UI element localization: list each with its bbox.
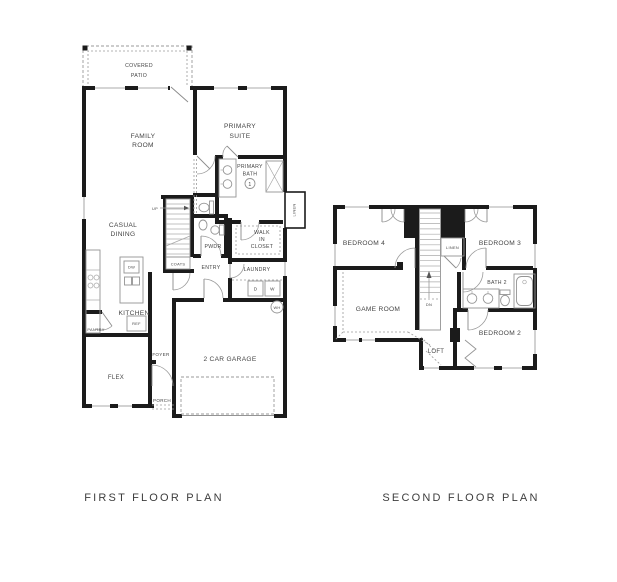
label-walk-in-closet: CLOSET bbox=[251, 244, 274, 250]
first-floor-walls bbox=[82, 86, 287, 418]
label-entry: ENTRY bbox=[202, 265, 221, 271]
second-floor-stairs bbox=[420, 209, 441, 330]
label-family-room: ROOM bbox=[132, 142, 154, 149]
label-primary-bath: BATH bbox=[243, 172, 258, 178]
label-dryer: D bbox=[254, 287, 258, 292]
label-up: UP bbox=[152, 206, 158, 211]
laundry-door bbox=[230, 264, 244, 278]
label-down: DN bbox=[426, 302, 432, 307]
garage-entry-door bbox=[204, 279, 223, 298]
label-casual-dining: CASUAL bbox=[109, 222, 137, 229]
game-room-dashed-lines bbox=[335, 272, 441, 365]
toilet-icon bbox=[500, 290, 510, 306]
label-coats: COATS bbox=[171, 262, 186, 267]
sink-icon bbox=[467, 294, 477, 304]
label-dishwasher: DW bbox=[128, 265, 135, 270]
label-walk-in-closet: IN bbox=[259, 237, 265, 243]
stair-break-line bbox=[166, 236, 190, 246]
label-linen-first: LINEN bbox=[292, 204, 297, 217]
label-powder: PWDR bbox=[204, 244, 221, 250]
cooktop bbox=[88, 275, 99, 288]
label-family-room: FAMILY bbox=[131, 133, 156, 140]
label-porch: PORCH bbox=[153, 398, 171, 403]
label-bath-number: 1 bbox=[248, 182, 251, 188]
label-pantry: PANTRY bbox=[87, 327, 104, 332]
label-refrigerator: REF bbox=[132, 321, 141, 326]
label-garage: 2 CAR GARAGE bbox=[203, 356, 256, 363]
label-primary-suite: SUITE bbox=[230, 133, 251, 140]
kitchen-counter bbox=[86, 250, 100, 333]
patio-post bbox=[187, 46, 192, 51]
label-covered-patio: PATIO bbox=[131, 73, 147, 79]
second-floor-plan: BEDROOM 4 BEDROOM 3 BEDROOM 2 GAME ROOM … bbox=[333, 205, 537, 370]
primary-bath-door bbox=[223, 146, 238, 157]
linen-door-second bbox=[444, 256, 461, 268]
second-floor-title: SECOND FLOOR PLAN bbox=[382, 492, 539, 504]
shower bbox=[266, 161, 283, 192]
label-covered-patio: COVERED bbox=[125, 63, 153, 69]
label-water-heater: WH bbox=[273, 305, 280, 310]
label-linen-second: LINEN bbox=[446, 245, 459, 250]
first-floor-title: FIRST FLOOR PLAN bbox=[84, 492, 224, 504]
label-foyer: FOYER bbox=[152, 352, 170, 357]
label-primary-bath: PRIMARY bbox=[237, 164, 263, 170]
bedroom2-door bbox=[468, 310, 488, 330]
garage-door-area bbox=[181, 377, 274, 414]
island-sink bbox=[125, 277, 132, 285]
hall-dashed-opening bbox=[194, 159, 197, 214]
label-game-room: GAME ROOM bbox=[356, 306, 400, 313]
label-primary-suite: PRIMARY bbox=[224, 123, 256, 130]
bathtub-icon bbox=[514, 274, 535, 308]
primary-suite-door bbox=[197, 156, 215, 174]
bedroom4-closet-doors bbox=[382, 209, 404, 222]
sink-icon bbox=[223, 166, 232, 175]
first-floor-plan: COVERED PATIO FAMILY ROOM PRIMARY SUITE … bbox=[82, 46, 305, 419]
island-sink bbox=[133, 277, 140, 285]
floor-plan-sheet: COVERED PATIO FAMILY ROOM PRIMARY SUITE … bbox=[0, 0, 617, 582]
label-flex: FLEX bbox=[108, 375, 124, 381]
label-bedroom-2: BEDROOM 2 bbox=[479, 330, 521, 337]
bedroom2-closet-bifold bbox=[465, 340, 476, 367]
front-door bbox=[152, 365, 173, 386]
label-bedroom-4: BEDROOM 4 bbox=[343, 240, 385, 247]
coats-door bbox=[173, 273, 190, 290]
sink-icon bbox=[223, 180, 232, 189]
label-kitchen: KITCHEN bbox=[118, 310, 149, 317]
label-washer: W bbox=[270, 287, 275, 292]
label-bedroom-3: BEDROOM 3 bbox=[479, 240, 521, 247]
label-walk-in-closet: WALK bbox=[254, 230, 270, 236]
label-bath-2: BATH 2 bbox=[487, 280, 507, 286]
label-laundry: LAUNDRY bbox=[244, 267, 271, 273]
floor-plan-drawing: COVERED PATIO FAMILY ROOM PRIMARY SUITE … bbox=[0, 0, 617, 582]
wc-toilet bbox=[199, 201, 214, 214]
bedroom3-door bbox=[466, 248, 486, 268]
bedroom3-closet-doors bbox=[465, 209, 487, 222]
patio-post bbox=[83, 46, 88, 51]
label-loft: LOFT bbox=[428, 349, 445, 355]
label-casual-dining: DINING bbox=[111, 231, 136, 238]
laundry-appliances bbox=[232, 280, 283, 296]
second-floor-doors bbox=[382, 209, 488, 367]
sink-icon bbox=[483, 294, 493, 304]
